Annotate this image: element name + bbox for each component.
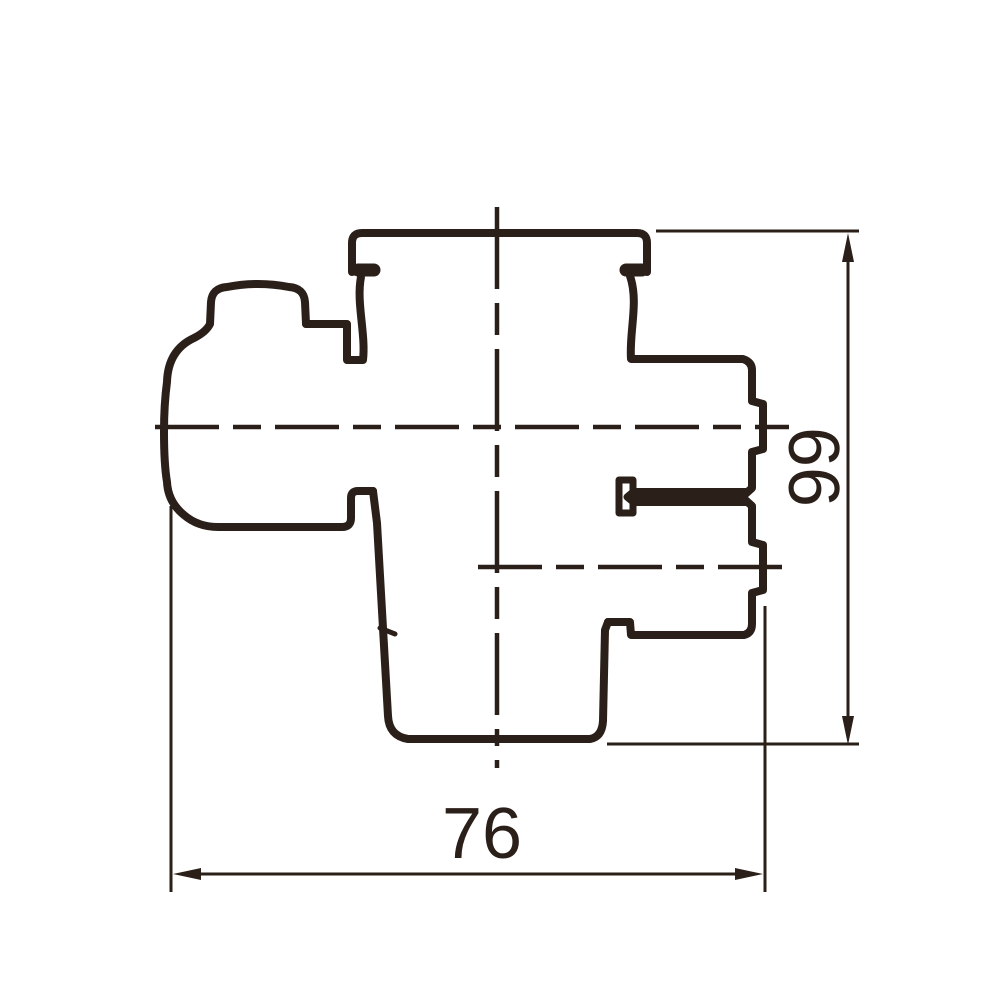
arrowhead-left-icon — [173, 868, 201, 880]
funnel-spout — [373, 491, 608, 739]
body-right-ports — [608, 276, 763, 635]
arrowhead-right-icon — [735, 868, 763, 880]
part-outline — [164, 233, 763, 739]
left-taper — [306, 277, 364, 360]
arrowhead-up-icon — [842, 233, 854, 262]
dimension-76-label: 76 — [442, 794, 522, 874]
union-nut-cap — [352, 233, 647, 272]
stem-end-cap — [619, 480, 633, 513]
arrowhead-down-icon — [842, 716, 854, 745]
stem-bar — [632, 488, 749, 506]
technical-drawing: 66 76 — [0, 0, 1000, 1000]
dimension-66-label: 66 — [773, 427, 853, 507]
dimension-76: 76 — [171, 506, 765, 892]
centerlines — [155, 207, 789, 768]
drawing-canvas: 66 76 — [0, 0, 1000, 1000]
